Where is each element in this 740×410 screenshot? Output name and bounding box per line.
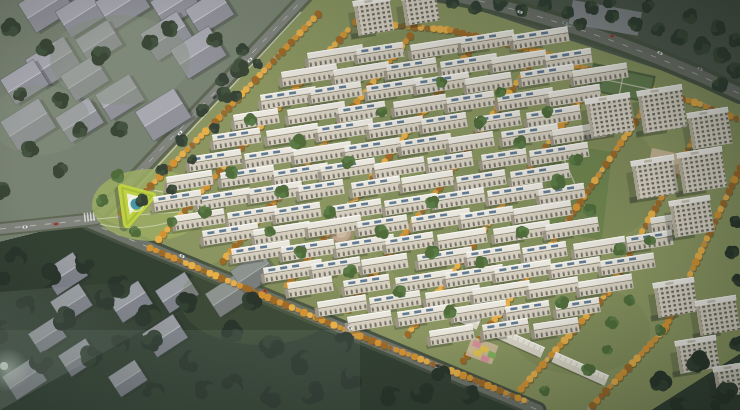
scene-canvas — [0, 0, 740, 410]
atmosphere-effects-layer — [0, 0, 740, 410]
masterplan-aerial-rendering — [0, 0, 740, 410]
vignette — [0, 0, 740, 410]
